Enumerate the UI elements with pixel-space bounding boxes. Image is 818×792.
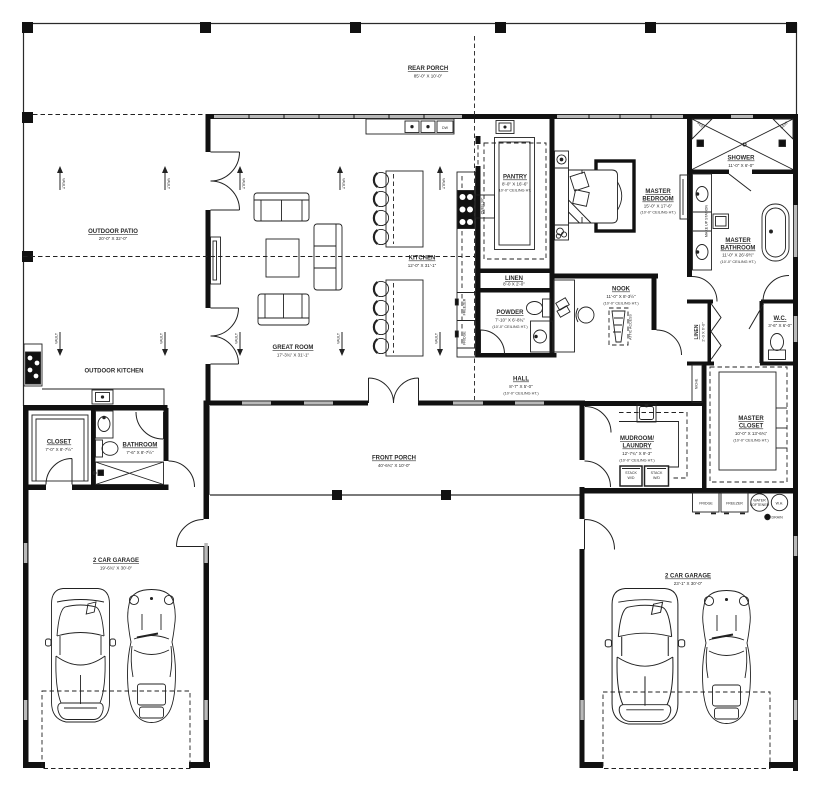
- svg-text:REAR PORCH: REAR PORCH: [408, 66, 448, 72]
- svg-text:STACK: STACK: [651, 471, 663, 475]
- svg-text:BATHROOM: BATHROOM: [123, 443, 158, 449]
- svg-text:HALL: HALL: [513, 377, 529, 383]
- svg-text:10'-0" X 13'-6¾": 10'-0" X 13'-6¾": [735, 431, 768, 436]
- svg-text:8'-0" X 16'-6": 8'-0" X 16'-6": [502, 182, 528, 187]
- svg-text:DRAIN: DRAIN: [772, 516, 784, 520]
- svg-text:GREAT ROOM: GREAT ROOM: [273, 345, 314, 351]
- svg-text:STACK: STACK: [625, 471, 637, 475]
- svg-text:NICHE: NICHE: [695, 378, 699, 389]
- svg-text:19'-6¾" X 30'-0": 19'-6¾" X 30'-0": [100, 566, 133, 571]
- svg-text:(10'-0" CEILING HT.): (10'-0" CEILING HT.): [603, 302, 639, 306]
- svg-text:FREEZER: FREEZER: [463, 298, 467, 315]
- svg-text:FRONT PORCH: FRONT PORCH: [372, 456, 416, 462]
- svg-text:20'-0" X 32'-0": 20'-0" X 32'-0": [99, 236, 128, 241]
- svg-text:(10'-0" CEILING HT.): (10'-0" CEILING HT.): [492, 325, 528, 329]
- svg-text:2 CAR GARAGE: 2 CAR GARAGE: [93, 558, 139, 564]
- svg-text:MAKE UP STATION: MAKE UP STATION: [705, 205, 709, 238]
- svg-text:FRIDGE: FRIDGE: [463, 331, 467, 345]
- svg-text:CLOSET: CLOSET: [47, 440, 72, 446]
- svg-text:W.H.: W.H.: [776, 502, 784, 506]
- svg-text:7'-0" X 8'-7½": 7'-0" X 8'-7½": [45, 446, 73, 452]
- svg-text:SOFTENER: SOFTENER: [750, 503, 770, 507]
- svg-text:POWDER: POWDER: [497, 310, 525, 316]
- svg-text:(10'-0" CEILING HT.): (10'-0" CEILING HT.): [503, 392, 539, 396]
- svg-text:FREEZER: FREEZER: [726, 502, 743, 506]
- svg-text:11'-0" X 8'-3½": 11'-0" X 8'-3½": [606, 293, 636, 299]
- svg-text:(10'-0" CEILING HT.): (10'-0" CEILING HT.): [733, 439, 769, 443]
- svg-text:OVEN 30": OVEN 30": [481, 197, 485, 214]
- svg-text:CLOSET: CLOSET: [739, 424, 764, 430]
- svg-text:15'-0" X 17'-6": 15'-0" X 17'-6": [644, 204, 673, 209]
- svg-text:ATTIC ACCESS: ATTIC ACCESS: [629, 314, 633, 340]
- svg-text:(10'-0" CEILING HT.): (10'-0" CEILING HT.): [640, 211, 676, 215]
- svg-text:12'-7¾" X 9'-3": 12'-7¾" X 9'-3": [622, 451, 652, 456]
- svg-text:MUDROOM/: MUDROOM/: [620, 436, 654, 442]
- svg-text:2'-0 X 6'-0": 2'-0 X 6'-0": [701, 322, 706, 342]
- svg-text:OUTDOOR PATIO: OUTDOOR PATIO: [88, 229, 138, 235]
- svg-text:2 CAR GARAGE: 2 CAR GARAGE: [665, 574, 711, 580]
- svg-text:KITCHEN: KITCHEN: [409, 256, 436, 262]
- svg-text:7'-10" X 6'-8¾": 7'-10" X 6'-8¾": [495, 318, 525, 323]
- svg-text:MASTER: MASTER: [645, 189, 671, 195]
- svg-text:W.C.: W.C.: [774, 316, 787, 322]
- svg-text:40'-6¾" X 10'-0": 40'-6¾" X 10'-0": [378, 463, 411, 468]
- svg-text:8'-7" X 5'-0": 8'-7" X 5'-0": [509, 384, 533, 389]
- svg-text:OUTDOOR KITCHEN: OUTDOOR KITCHEN: [85, 369, 144, 375]
- svg-text:SHOWER: SHOWER: [728, 156, 756, 162]
- svg-text:MASTER: MASTER: [725, 238, 751, 244]
- svg-text:BEDROOM: BEDROOM: [642, 197, 673, 203]
- svg-text:LINEN: LINEN: [694, 324, 700, 339]
- svg-text:BATHROOM: BATHROOM: [721, 246, 756, 252]
- svg-text:NOOK: NOOK: [612, 287, 631, 293]
- svg-text:(10'-0" CEILING HT.): (10'-0" CEILING HT.): [619, 459, 655, 463]
- svg-text:85'-0" X 10'-0": 85'-0" X 10'-0": [414, 74, 443, 79]
- svg-text:12'-0" X 31'-1": 12'-0" X 31'-1": [408, 263, 437, 268]
- svg-text:8'-0 X 2'-0": 8'-0 X 2'-0": [503, 282, 525, 287]
- svg-text:W/D: W/D: [653, 476, 660, 480]
- svg-text:10'-0" CEILING HT.: 10'-0" CEILING HT.: [499, 189, 532, 193]
- svg-text:WATER: WATER: [753, 499, 766, 503]
- svg-text:23'-1" X 30'-0": 23'-1" X 30'-0": [674, 581, 703, 586]
- svg-text:PANTRY: PANTRY: [503, 175, 527, 181]
- svg-text:FRIDGE: FRIDGE: [699, 502, 713, 506]
- svg-text:MASTER: MASTER: [738, 416, 764, 422]
- svg-text:DW: DW: [442, 126, 449, 130]
- svg-text:(10'-0" CEILING HT.): (10'-0" CEILING HT.): [720, 260, 756, 264]
- svg-text:LAUNDRY: LAUNDRY: [622, 444, 651, 450]
- svg-text:11'-0" X 26'-9½": 11'-0" X 26'-9½": [722, 252, 754, 258]
- svg-text:3'-6" X 6'-0": 3'-6" X 6'-0": [768, 323, 792, 328]
- svg-text:17'-3¾" X 31'-1": 17'-3¾" X 31'-1": [277, 353, 310, 358]
- svg-text:W/D: W/D: [628, 476, 635, 480]
- svg-text:7'-6" X 8'-7½": 7'-6" X 8'-7½": [126, 449, 154, 455]
- svg-text:11'-0" X 6'-0": 11'-0" X 6'-0": [728, 163, 754, 168]
